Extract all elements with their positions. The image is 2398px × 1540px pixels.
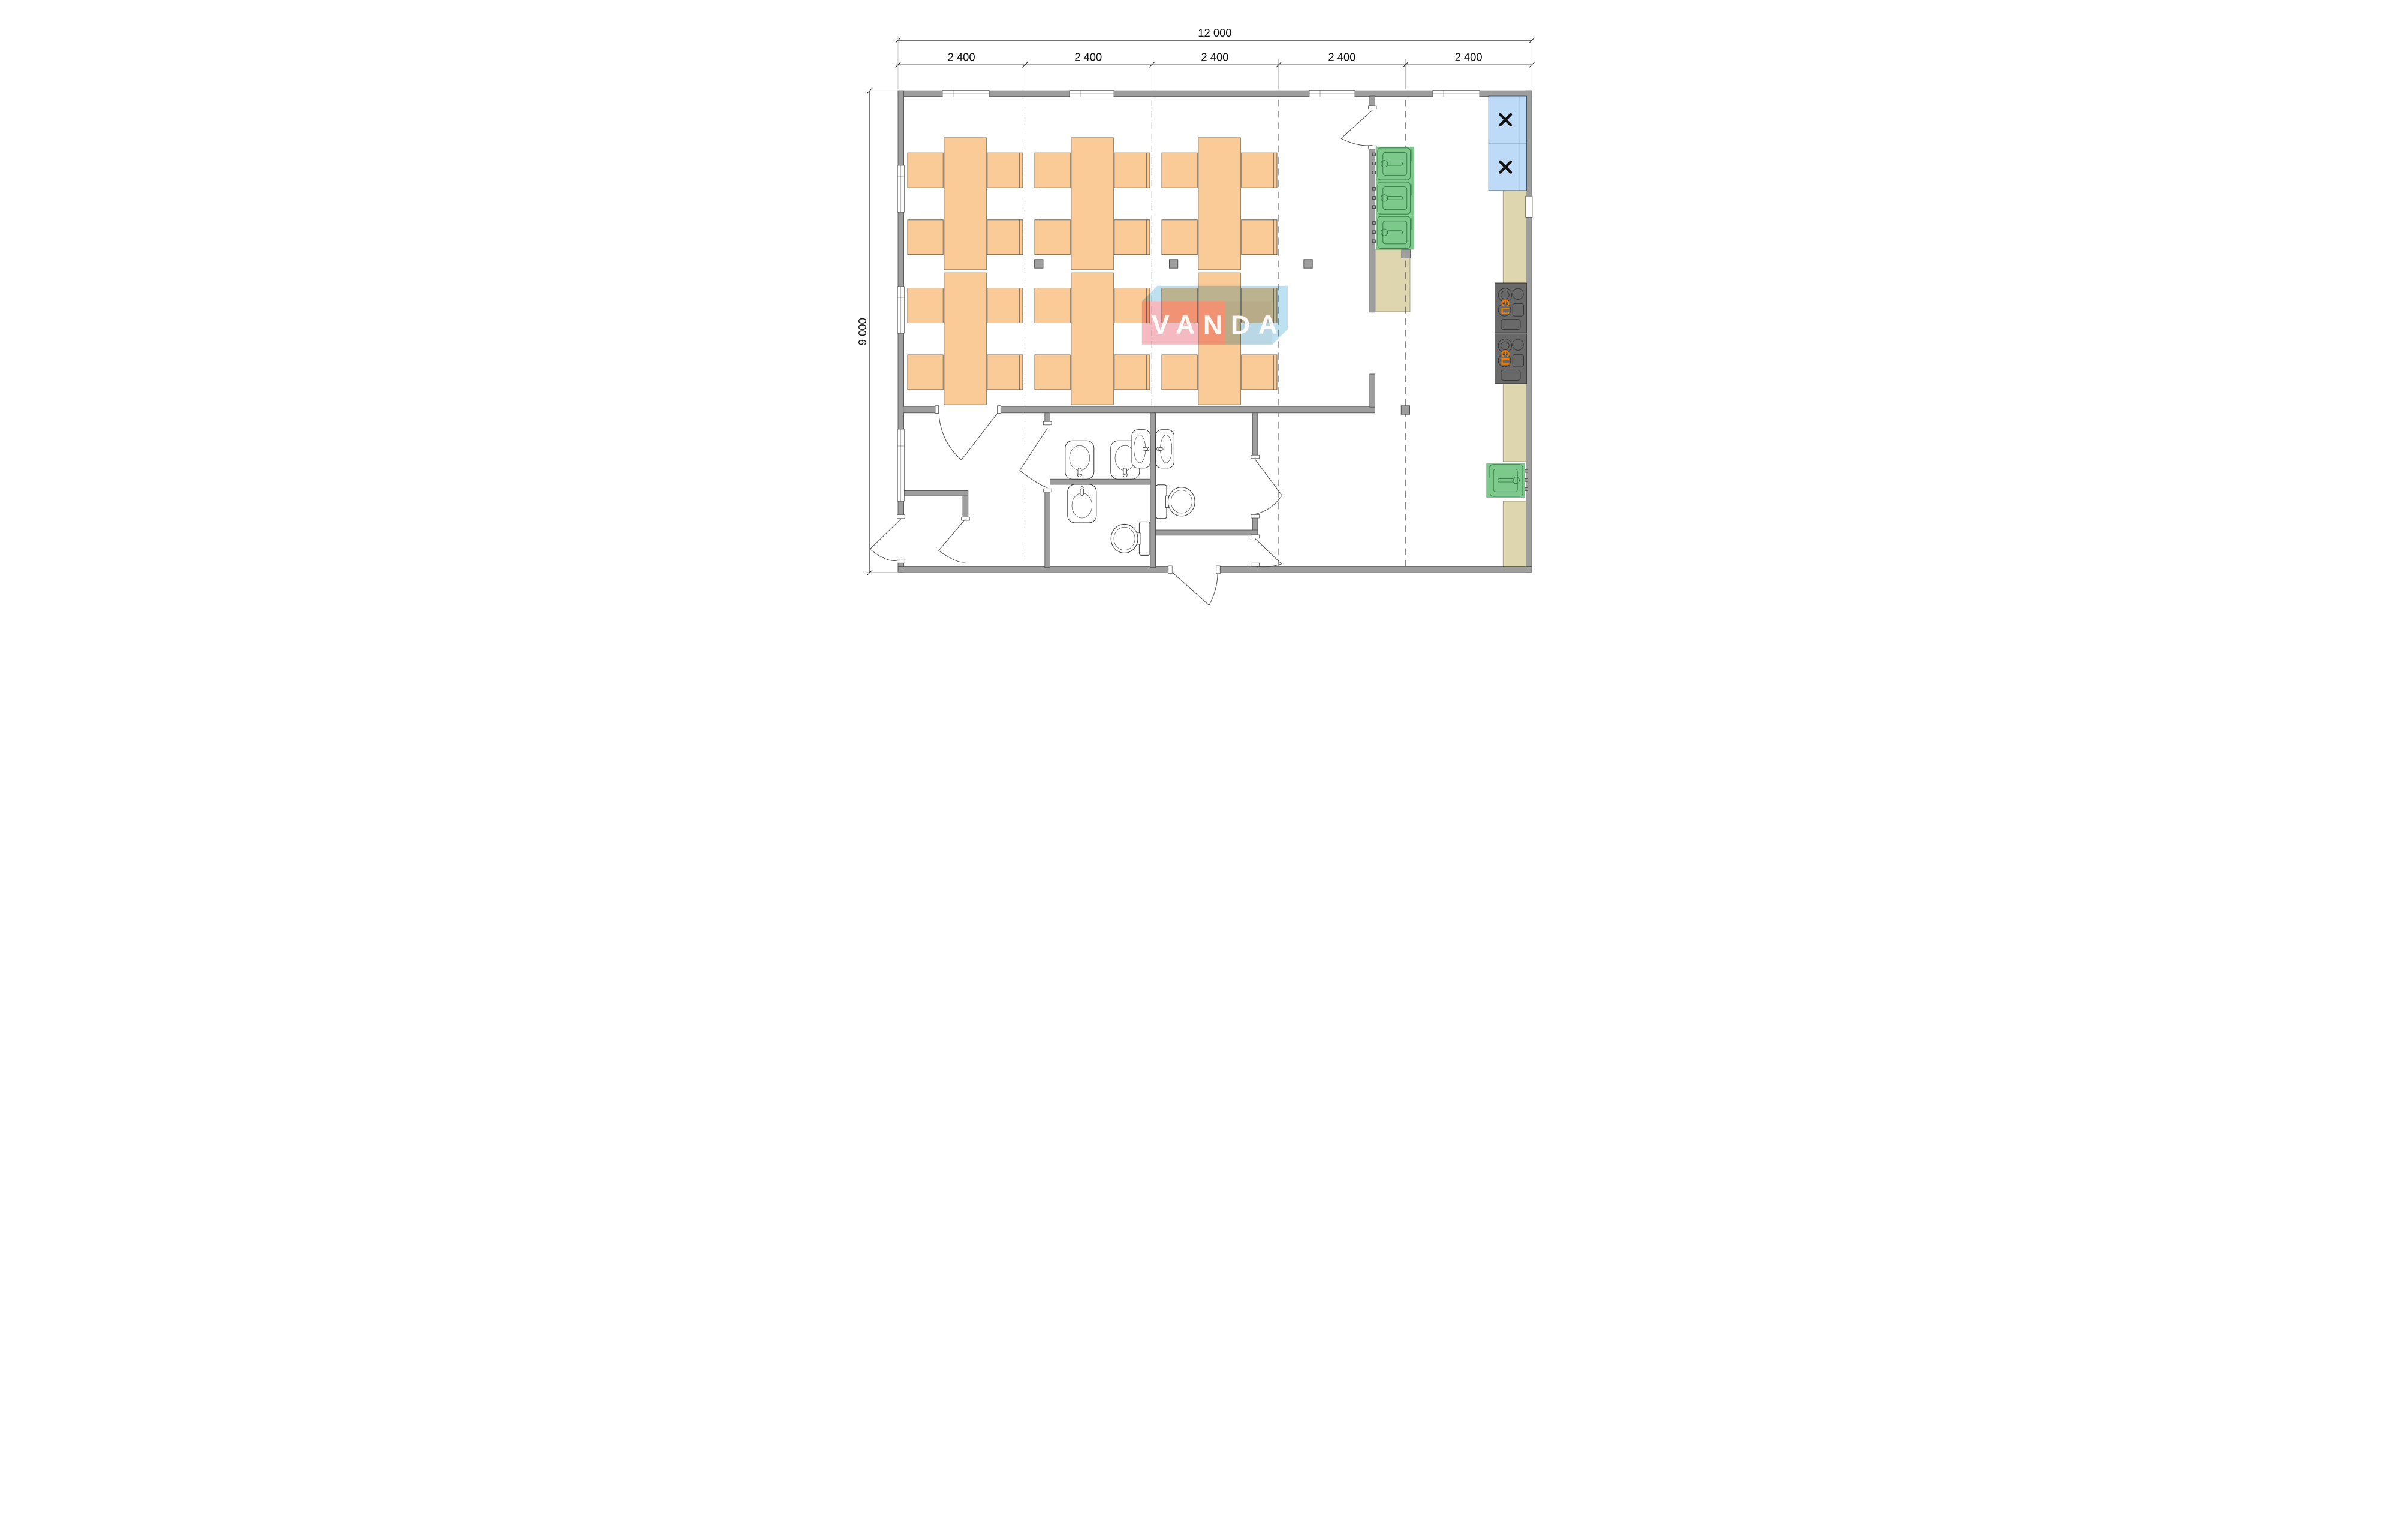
door-jamb [1251, 563, 1260, 566]
kitchen-sink [1373, 181, 1414, 215]
door-jamb [1251, 514, 1260, 518]
dim-segment: 2 400 [948, 51, 975, 64]
structural-column [1304, 260, 1312, 268]
watermark-text: VANDA [1152, 310, 1286, 340]
door-jamb [998, 406, 1001, 414]
window-top-1 [942, 90, 989, 97]
door-jamb [1168, 566, 1172, 574]
wash-basin [1065, 441, 1094, 479]
kitchen-sink [1373, 215, 1414, 249]
door-jamb [1043, 421, 1052, 425]
window-top-4 [1433, 90, 1480, 97]
dim-segment: 2 400 [1328, 51, 1355, 64]
structural-column [1169, 260, 1177, 268]
door-jamb [935, 406, 939, 414]
electric-stove [1495, 334, 1527, 384]
refrigerator [1489, 96, 1526, 143]
door-jamb [1043, 489, 1052, 492]
dim-segment: 2 400 [1074, 51, 1102, 64]
wc-stall-bottom-wall [1156, 530, 1258, 535]
grid-column [1401, 406, 1409, 414]
wc-stall-wall-stub [1252, 413, 1258, 459]
door-opening [897, 519, 904, 559]
watermark-top-face [1142, 286, 1288, 302]
vestibule-wall [963, 496, 968, 519]
kitchen-counter [1376, 249, 1410, 312]
dim-segment: 2 400 [1201, 51, 1228, 64]
toilet [1111, 522, 1150, 555]
window-top-3 [1309, 90, 1355, 97]
exterior-wall-right [1526, 91, 1532, 572]
kitchen-sink [1486, 463, 1528, 498]
door-jamb [1368, 146, 1376, 149]
dim-total-width: 12 000 [1198, 26, 1231, 39]
door-opening [1172, 566, 1216, 573]
door-jamb [1216, 566, 1220, 574]
window-top-2 [1070, 90, 1114, 97]
door-jamb [897, 559, 905, 563]
wc-central-wall [1150, 413, 1156, 568]
door-jamb [1251, 455, 1260, 459]
kitchen-counter [1503, 501, 1526, 567]
door-main-entrance [1173, 572, 1218, 605]
kitchen-counter [1503, 384, 1526, 462]
structural-column [1035, 260, 1043, 268]
dim-total-height: 9 000 [856, 318, 869, 345]
window-right-1 [1526, 196, 1532, 217]
wash-basin [1132, 430, 1150, 468]
wc-left-wall [1045, 489, 1050, 567]
kitchen-partition [1370, 374, 1375, 407]
toilet [1156, 485, 1195, 519]
watermark-logo: VANDA [1142, 286, 1288, 345]
kitchen-counter [1503, 191, 1526, 283]
interior-wall [999, 406, 1375, 413]
door-exterior-left [870, 519, 901, 561]
door-jamb [962, 517, 970, 520]
door-jamb [1251, 535, 1260, 538]
window-left-3 [897, 429, 904, 501]
floor-plan-canvas: ПЭ [719, 0, 1679, 616]
electric-stove [1495, 283, 1527, 333]
floor-plan-page: ПЭ [719, 0, 1679, 616]
door-jamb [1368, 106, 1376, 109]
interior-wall [903, 406, 937, 413]
refrigerator [1489, 143, 1526, 191]
door-jamb [897, 514, 905, 518]
window-left-1 [897, 165, 904, 212]
dim-segment: 2 400 [1455, 51, 1483, 64]
kitchen-sink [1373, 147, 1414, 181]
counter-wall-stub [1402, 249, 1410, 258]
vestibule-wall [903, 490, 968, 496]
wash-basin [1156, 430, 1174, 468]
wash-basin [1068, 484, 1096, 523]
window-left-2 [897, 287, 904, 333]
wc-divider-wall [1050, 479, 1150, 484]
